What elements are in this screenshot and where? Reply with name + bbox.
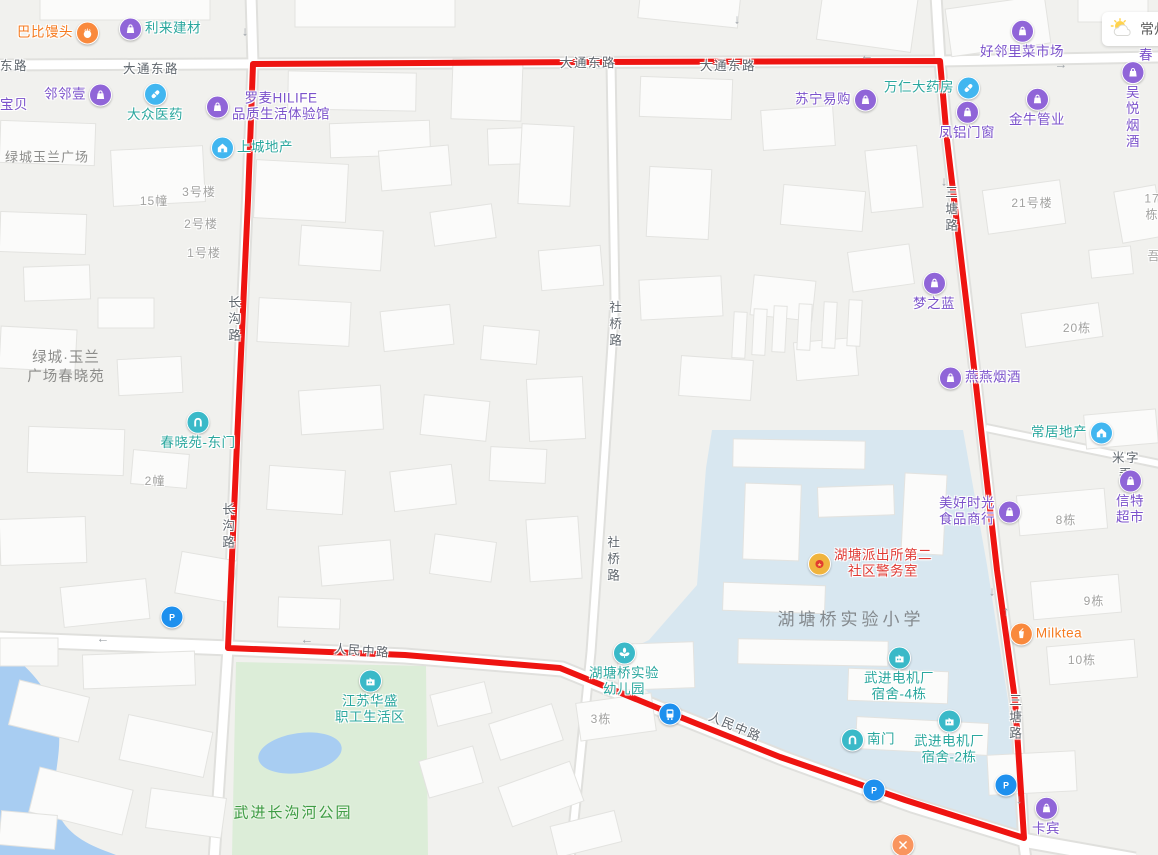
building-label: 15幢 (140, 194, 168, 210)
poi-label: 金牛管业 (1009, 112, 1065, 128)
road-label: 长沟路 (219, 502, 235, 552)
bag-icon (89, 84, 112, 107)
road-label: 社桥路 (604, 535, 620, 585)
poi-shangcheng-dichan[interactable]: 上城地产 (211, 137, 293, 160)
poi-label: 巴比馒头 (17, 25, 73, 41)
area-label: 绿城玉兰广场 (5, 150, 89, 167)
building-label: 9栋 (1084, 594, 1105, 610)
building-label: 20栋 (1063, 321, 1091, 337)
poi-parking-1[interactable] (161, 606, 184, 629)
road-label: 东路 (0, 58, 28, 74)
road-arrow-icon: ↓ (989, 584, 996, 601)
poi-south-gate[interactable]: 南门 (841, 729, 895, 752)
poi-label: 吴悦烟酒 (1121, 85, 1146, 151)
bag-icon (1119, 470, 1142, 493)
bag-icon (923, 272, 946, 295)
poi-label: 美好时光 食品商行 (939, 496, 995, 529)
poi-label: 卡宾 (1032, 821, 1060, 837)
poi-babi-mantou[interactable]: 巴比馒头 (17, 22, 99, 45)
road-arrow-icon: ← (122, 58, 135, 75)
road-label: 人民中路 (706, 709, 764, 746)
bus-icon (659, 703, 682, 726)
pill-icon (144, 83, 167, 106)
road-label: 长沟路 (225, 295, 241, 345)
gate-icon (187, 411, 210, 434)
food-icon (76, 22, 99, 45)
poi-label: 湖塘桥实验 幼儿园 (589, 666, 659, 699)
poi-label: 罗麦HILIFE 品质生活体验馆 (232, 91, 330, 124)
poi-label: 春晓苑-东门 (161, 435, 236, 451)
road-label: 社桥路 (606, 300, 622, 350)
poi-luomai-hilife[interactable]: 罗麦HILIFE 品质生活体验馆 (206, 91, 330, 124)
road-arrow-icon: ← (97, 631, 110, 648)
poi-suning-yigou[interactable]: 苏宁易购 (795, 89, 877, 112)
poi-wuyue-yanjiu[interactable]: 吴悦烟酒 (1121, 61, 1146, 151)
police-icon (808, 553, 831, 576)
factory-icon (888, 647, 911, 670)
bag-icon (956, 101, 979, 124)
poi-xinte-chaoshi[interactable]: 信特超市 (1116, 470, 1144, 527)
road-arrow-icon: ← (301, 632, 314, 649)
poi-label: 万仁大药房 (884, 80, 954, 96)
bag-icon (1035, 797, 1058, 820)
poi-bus-stop[interactable] (659, 703, 682, 726)
gate-icon (841, 729, 864, 752)
parking-icon (161, 606, 184, 629)
factory-icon (359, 670, 382, 693)
poi-yanyan-yanjiu[interactable]: 燕燕烟酒 (939, 367, 1021, 390)
poi-label: 南门 (867, 732, 895, 748)
poi-label: 大众医药 (127, 107, 183, 123)
poi-dianjichang-dorm-4[interactable]: 武进电机厂 宿舍-4栋 (864, 647, 934, 704)
poi-changju-dichan[interactable]: 常居地产 (1031, 422, 1113, 445)
poi-label: 上城地产 (237, 140, 293, 156)
poi-label: 信特超市 (1116, 494, 1144, 527)
cup-icon (1010, 623, 1033, 646)
poi-chunxiaoyuan-east-gate[interactable]: 春晓苑-东门 (161, 411, 236, 451)
building-label: 2号楼 (184, 217, 218, 233)
bag-icon (939, 367, 962, 390)
building-label: 2幢 (145, 474, 166, 490)
road-label: 三塘路 (942, 185, 958, 235)
building-label: 8栋 (1056, 513, 1077, 529)
road-label: 大通东路 (123, 61, 179, 77)
poi-parking-3[interactable] (995, 774, 1018, 797)
bag-icon (206, 96, 229, 119)
road-label: 三塘路 (1006, 693, 1022, 743)
poi-label: 邻邻壹 (44, 87, 86, 103)
weather-widget[interactable]: 常州 (1102, 12, 1158, 46)
building-label: 10栋 (1068, 653, 1096, 669)
road-label: 大通东路 (700, 58, 756, 74)
building-label: 17栋 (1144, 191, 1158, 222)
road-arrow-icon: ← (861, 48, 874, 65)
road-arrow-icon: ↑ (1003, 604, 1010, 621)
bag-icon (1122, 61, 1145, 84)
poi-milktea[interactable]: Milktea (1010, 623, 1082, 646)
road-arrow-icon: ↓ (941, 174, 948, 191)
poi-haolinli-market[interactable]: 好邻里菜市场 (980, 20, 1064, 60)
building-label: 3号楼 (182, 185, 216, 201)
weather-sun-cloud-icon (1110, 18, 1134, 40)
road-arrow-icon: ↓ (242, 24, 249, 41)
poi-jiangsu-huasheng[interactable]: 江苏华盛 职工生活区 (335, 670, 405, 727)
poi-dazhong-yiyao[interactable]: 大众医药 (127, 83, 183, 123)
weather-city: 常州 (1140, 19, 1158, 39)
bag-icon (998, 501, 1021, 524)
poi-dianjichang-dorm-2[interactable]: 武进电机厂 宿舍-2栋 (914, 710, 984, 767)
bag-icon (1026, 88, 1049, 111)
area-label: 湖塘桥实验小学 (778, 609, 925, 631)
poi-parking-2[interactable] (863, 779, 886, 802)
poi-lilai-jiancai[interactable]: 利来建材 (119, 18, 201, 41)
poi-label: 湖塘派出所第二 社区警务室 (834, 548, 932, 581)
poi-jinniu-guanye[interactable]: 金牛管业 (1009, 88, 1065, 128)
area-label: 武进长沟河公园 (233, 803, 352, 823)
poi-wanren-dayaofang[interactable]: 万仁大药房 (884, 77, 980, 100)
poi-label: Milktea (1036, 626, 1082, 642)
poi-hutangqiao-kindergarten[interactable]: 湖塘桥实验 幼儿园 (589, 642, 659, 699)
poi-label: 燕燕烟酒 (965, 370, 1021, 386)
factory-icon (938, 710, 961, 733)
house-icon (1090, 422, 1113, 445)
poi-label: 好邻里菜市场 (980, 44, 1064, 60)
poi-label: 苏宁易购 (795, 92, 851, 108)
pill-icon (957, 77, 980, 100)
road-arrow-icon: ↓ (734, 12, 741, 29)
poi-label: 宝贝 (0, 97, 28, 113)
area-label: 绿城·玉兰 广场春晓苑 (27, 349, 105, 387)
road-label: 大通东路 (560, 55, 616, 71)
poi-label: 武进电机厂 宿舍-4栋 (864, 671, 934, 704)
fork-icon (892, 834, 915, 855)
poi-linlinyi[interactable]: 邻邻壹 (44, 84, 112, 107)
bag-icon (854, 89, 877, 112)
poi-label: 常居地产 (1031, 425, 1087, 441)
poi-meihao-shiguang[interactable]: 美好时光 食品商行 (939, 496, 1021, 529)
poi-hutang-police-room[interactable]: 湖塘派出所第二 社区警务室 (808, 548, 932, 581)
building-label: 吾 (1147, 249, 1158, 265)
poi-label: 凤铝门窗 (939, 125, 995, 141)
poi-label: 江苏华盛 职工生活区 (335, 694, 405, 727)
parking-icon (995, 774, 1018, 797)
map-canvas[interactable]: P ★ (0, 0, 1158, 855)
building-label: 1号楼 (187, 246, 221, 262)
school-icon (613, 642, 636, 665)
poi-label: 武进电机厂 宿舍-2栋 (914, 734, 984, 767)
building-label: 21号楼 (1011, 196, 1052, 212)
poi-restaurant[interactable] (892, 834, 915, 855)
house-icon (211, 137, 234, 160)
road-label: 人民中路 (333, 641, 390, 661)
poi-mengzhilan[interactable]: 梦之蓝 (913, 272, 955, 312)
bag-icon (1011, 20, 1034, 43)
map-labels-layer: 东路大通东路大通东路大通东路人民中路人民中路米字弄三塘路三塘路长沟路长沟路社桥路… (0, 0, 1158, 855)
poi-baobei[interactable]: 宝贝 (0, 97, 28, 113)
poi-kabin[interactable]: 卡宾 (1032, 797, 1060, 837)
building-label: 3栋 (591, 712, 612, 728)
bag-icon (119, 18, 142, 41)
poi-label: 梦之蓝 (913, 296, 955, 312)
poi-fenglv-menchuang[interactable]: 凤铝门窗 (939, 101, 995, 141)
parking-icon (863, 779, 886, 802)
poi-label: 利来建材 (145, 21, 201, 37)
